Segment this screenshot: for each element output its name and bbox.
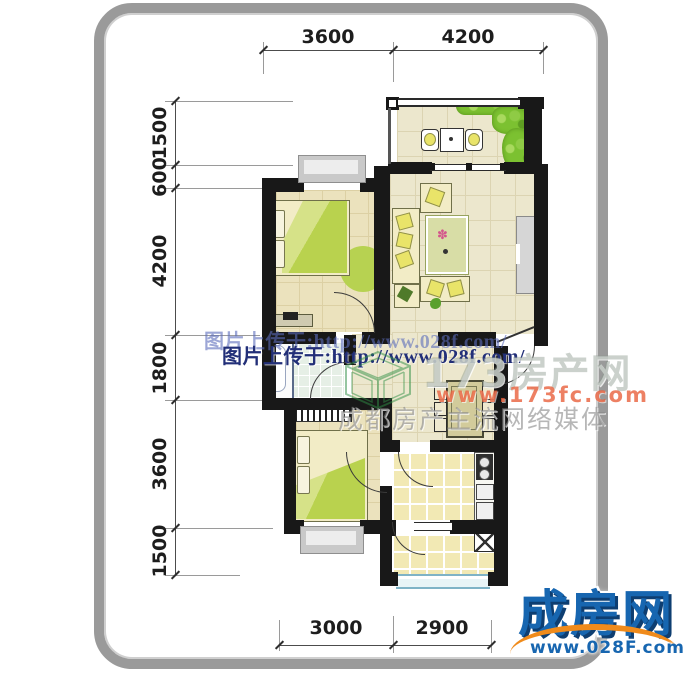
wall <box>380 486 392 586</box>
table-dot <box>449 137 453 141</box>
wall <box>504 162 536 174</box>
dim-bottom-2: 2900 <box>407 617 477 639</box>
brand-logo: 成房网 www.028F.com <box>500 570 700 670</box>
dim-left-3: 4200 <box>149 230 171 292</box>
dim-line-top <box>263 50 543 51</box>
balcony-top-window <box>398 98 520 107</box>
pillow <box>297 466 310 494</box>
washer-box <box>474 532 496 552</box>
watermark-portal-slogan: 成都房产主流网络媒体 <box>338 400 608 436</box>
chair-seat <box>468 133 480 146</box>
wall <box>374 166 390 334</box>
bay-window-inner <box>306 531 356 545</box>
dim-line-left <box>175 101 176 575</box>
dim-left-2: 600 <box>149 146 171 208</box>
slider-post <box>429 163 435 170</box>
counter-unit <box>476 502 494 520</box>
pillow <box>297 436 310 464</box>
tv-slit <box>516 244 520 264</box>
dim-ext <box>393 616 394 653</box>
chair-seat <box>424 133 436 146</box>
wall <box>450 520 494 534</box>
dim-ext <box>165 528 273 529</box>
wall <box>488 572 498 586</box>
slider-post <box>500 163 506 170</box>
dim-top-2: 4200 <box>433 26 503 48</box>
floorplan-image: 3600 4200 1500 600 4200 1800 3600 1500 3… <box>0 0 700 673</box>
wall <box>284 410 296 532</box>
sofa-cushion <box>396 232 414 250</box>
dim-left-6: 1500 <box>149 520 171 582</box>
wall <box>430 440 496 452</box>
dim-top-1: 3600 <box>293 26 363 48</box>
balcony-side-line <box>388 108 391 164</box>
dim-ext <box>491 620 492 653</box>
dim-bottom-1: 3000 <box>301 617 371 639</box>
wall <box>392 440 400 452</box>
dim-left-5: 3600 <box>149 433 171 495</box>
dim-line-bottom <box>279 645 491 646</box>
living-rug <box>426 216 468 274</box>
wall <box>262 178 276 344</box>
dim-ext <box>165 165 293 166</box>
bay-window-inner <box>304 160 358 174</box>
slider-post <box>466 163 472 170</box>
brand-url: www.028F.com <box>530 638 685 658</box>
burner <box>479 469 490 480</box>
tv-icon <box>283 312 298 320</box>
sink <box>476 484 494 500</box>
bottom-balcony-window <box>396 574 490 589</box>
flower-icon: ✽ <box>437 227 448 243</box>
burner <box>479 457 490 468</box>
dim-left-4: 1800 <box>149 337 171 399</box>
dim-ext <box>165 101 293 102</box>
corner-post-inner <box>389 100 396 107</box>
rug-dot <box>443 249 448 254</box>
wall <box>388 572 398 586</box>
wall <box>534 164 548 346</box>
wall <box>388 162 432 174</box>
wall <box>524 106 542 168</box>
